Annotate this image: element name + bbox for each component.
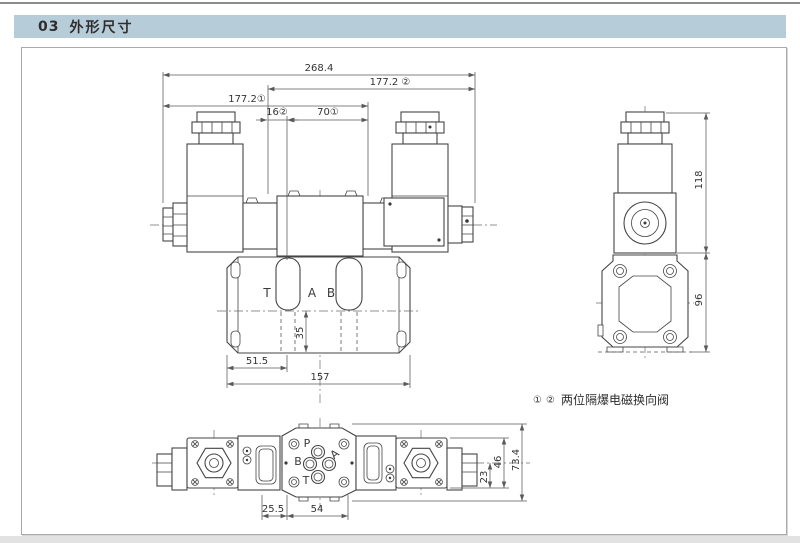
dim-label-25-5: 25.5 — [262, 504, 284, 515]
dim-label-73-4: 73.4 — [511, 449, 522, 471]
left-solenoid-coil — [187, 144, 243, 252]
right-cable-gland — [396, 112, 444, 144]
left-flange — [187, 438, 238, 488]
corner-slot — [231, 262, 240, 278]
dim-label-51-5: 51.5 — [246, 356, 268, 367]
manifold-bottom: P B A T — [282, 424, 356, 501]
bottom-view: P B A T — [152, 418, 530, 520]
side-view: 118 96 — [596, 106, 710, 360]
port-label-a: A — [308, 286, 317, 300]
valve-body — [277, 196, 363, 256]
left-coil-bottom — [238, 436, 280, 490]
nameplate — [384, 198, 444, 246]
dim-label-177-2-b: 177.2 ② — [370, 77, 411, 88]
side-coil — [618, 144, 672, 193]
dim-label-46: 46 — [493, 456, 504, 469]
corner-slot — [397, 331, 406, 347]
right-end-nut — [448, 206, 473, 243]
port-label-p-bottom: P — [304, 437, 311, 450]
note-marker-2: ② — [546, 395, 555, 406]
note-text: 两位隔爆电磁换向阀 — [561, 392, 669, 407]
corner-slot — [231, 331, 240, 347]
dim-label-268-4: 268.4 — [305, 63, 334, 74]
note-marker-1: ① — [533, 395, 542, 406]
catalog-page: { "header": { "number": "03", "title": "… — [0, 0, 800, 543]
dim-label-96: 96 — [694, 294, 705, 307]
left-tube — [243, 203, 277, 249]
side-solenoid-housing — [614, 193, 676, 253]
port-slot-b — [336, 258, 362, 310]
dim-label-177-2-a: 177.2① — [228, 94, 266, 105]
port-label-t-bottom: T — [302, 474, 310, 487]
dimension-drawing: T A B 268.4 177.2 ② 177.2① 16② 70① 51.5 — [0, 0, 800, 543]
left-coupling — [157, 448, 187, 490]
bottom-dimensions: 25.5 54 — [262, 495, 348, 520]
port-slot-a — [276, 258, 300, 310]
dim-label-157: 157 — [310, 372, 329, 383]
dim-label-16: 16② — [266, 107, 288, 118]
right-coil-bottom — [356, 436, 396, 490]
port-label-b-bottom: B — [294, 455, 302, 468]
dim-label-54: 54 — [311, 504, 324, 515]
dim-label-23: 23 — [479, 471, 490, 484]
valve-end-view — [598, 255, 692, 352]
right-coupling — [447, 448, 477, 490]
valve-note: ① ② 两位隔爆电磁换向阀 — [533, 392, 669, 407]
dim-label-35: 35 — [295, 327, 306, 340]
subplate: T A B — [217, 257, 420, 353]
port-label-t: T — [262, 286, 271, 300]
side-cable-gland — [621, 112, 669, 144]
dim-label-118: 118 — [694, 170, 705, 189]
port-label-b: B — [327, 286, 335, 300]
dim-label-70: 70① — [317, 107, 339, 118]
front-view: T A B 268.4 177.2 ② 177.2① 16② 70① 51.5 — [150, 63, 497, 405]
corner-slot — [397, 262, 406, 278]
left-cable-gland — [192, 112, 240, 144]
left-end-nut — [163, 203, 187, 246]
right-flange — [396, 438, 447, 488]
